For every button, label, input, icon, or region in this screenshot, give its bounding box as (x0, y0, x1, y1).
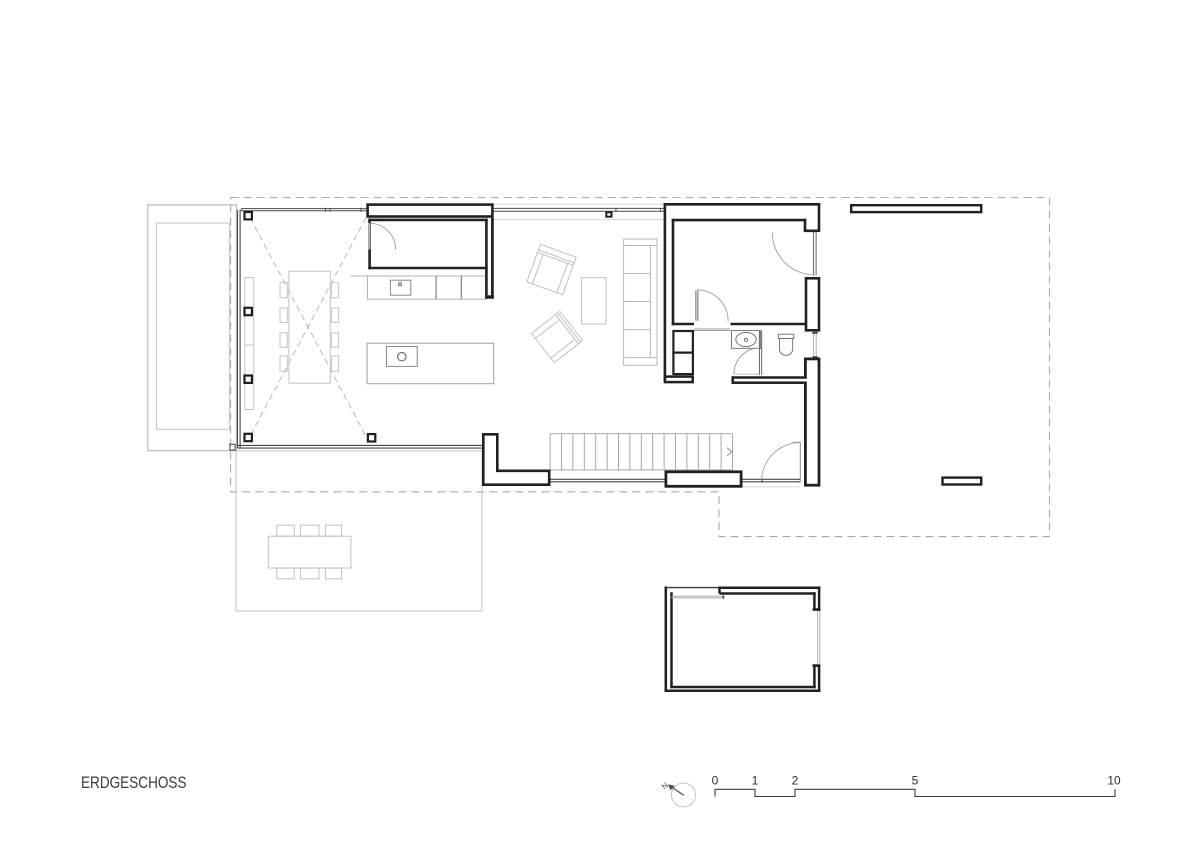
svg-text:ERDGESCHOSS: ERDGESCHOSS (81, 773, 187, 792)
svg-text:5: 5 (912, 773, 919, 787)
svg-text:0: 0 (712, 773, 719, 787)
svg-text:10: 10 (1107, 773, 1121, 787)
svg-text:2: 2 (792, 773, 799, 787)
svg-text:1: 1 (752, 773, 759, 787)
